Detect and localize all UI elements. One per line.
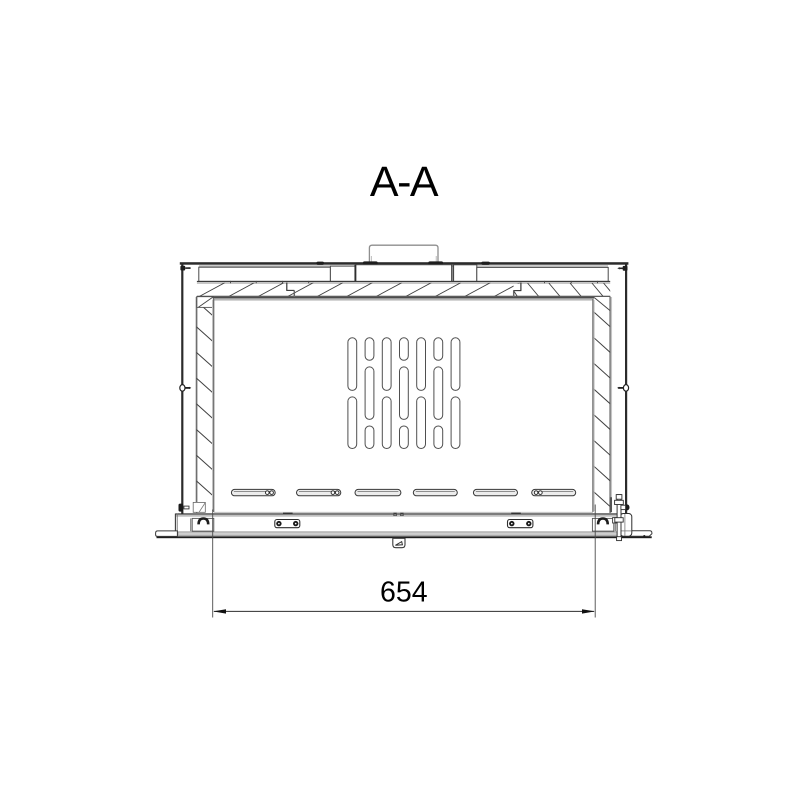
svg-text:654: 654 [380, 577, 428, 609]
svg-text:A-A: A-A [370, 158, 439, 206]
